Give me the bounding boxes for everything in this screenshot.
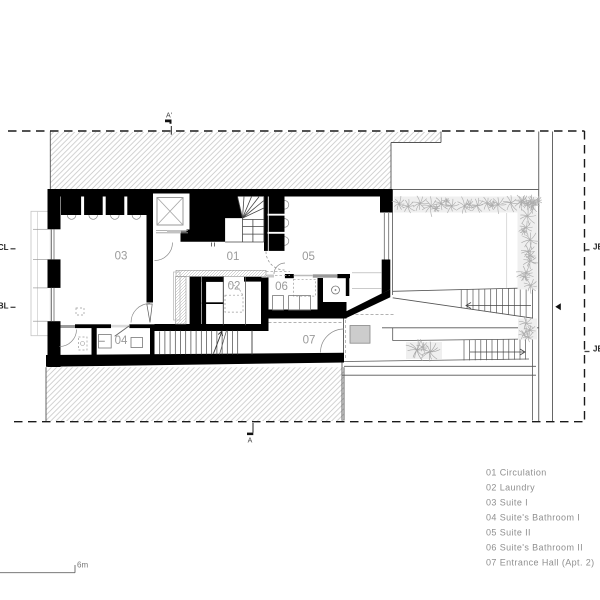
svg-text:A': A' [166,113,172,120]
svg-text:BL: BL [0,302,9,311]
svg-text:06 Suite's Bathroom II: 06 Suite's Bathroom II [486,543,583,553]
svg-text:03 Suite I: 03 Suite I [486,498,528,508]
svg-text:04: 04 [115,335,128,347]
svg-text:04 Suite's Bathroom I: 04 Suite's Bathroom I [486,513,580,523]
svg-text:6m: 6m [77,561,88,570]
svg-text:07 Entrance Hall (Apt. 2): 07 Entrance Hall (Apt. 2) [486,558,595,568]
svg-text:01 Circulation: 01 Circulation [486,468,547,478]
svg-text:05: 05 [302,251,315,263]
svg-text:02: 02 [228,281,241,293]
svg-text:03: 03 [115,251,128,263]
svg-text:JE: JE [593,243,600,252]
svg-text:CL: CL [0,243,9,252]
svg-text:05 Suite II: 05 Suite II [486,528,531,538]
svg-text:06: 06 [275,281,288,293]
svg-text:JE: JE [593,345,600,354]
svg-text:01: 01 [227,251,240,263]
svg-text:A: A [248,438,253,445]
svg-text:07: 07 [303,335,316,347]
svg-text:02 Laundry: 02 Laundry [486,483,535,493]
